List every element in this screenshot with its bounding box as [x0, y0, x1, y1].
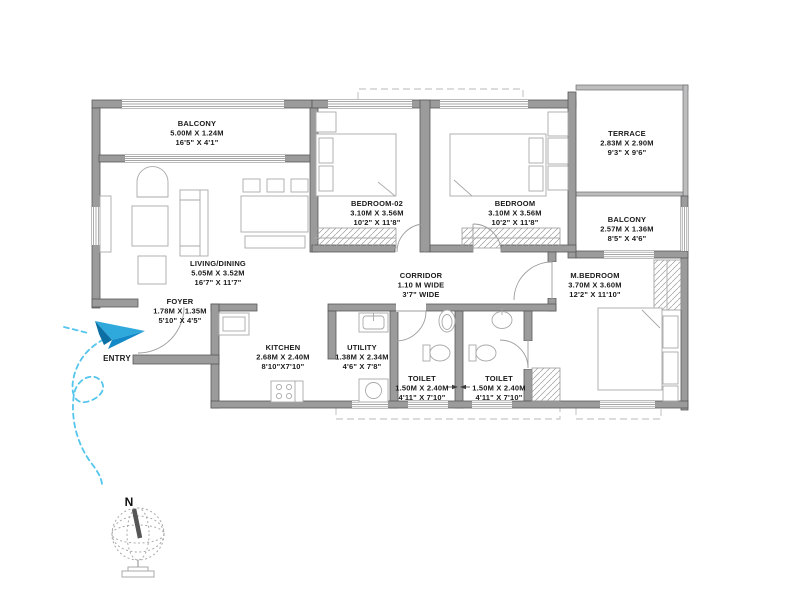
room-name: BEDROOM-02	[351, 199, 403, 208]
room-label-bedroom: BEDROOM 3.10M X 3.56M 10'2" X 11'8"	[488, 199, 541, 227]
room-name: LIVING/DINING	[190, 259, 246, 268]
room-metric: 1.38M X 2.34M	[335, 353, 388, 362]
room-imperial: 10'2" X 11'8"	[491, 218, 538, 227]
room-metric: 1.50M X 2.40M	[395, 384, 448, 393]
room-metric: 3.10M X 3.56M	[350, 209, 403, 218]
floorplan-drawing: N BALCONY 5.00M X 1.24M 16'5" X 4'1" LIV…	[0, 0, 800, 600]
room-metric: 5.00M X 1.24M	[170, 129, 223, 138]
room-imperial: 9'3" X 9'6"	[608, 148, 647, 157]
room-name: M.BEDROOM	[570, 271, 619, 280]
room-metric: 2.83M X 2.90M	[600, 139, 653, 148]
room-label-toilet-2: TOILET 1.50M X 2.40M 4'11" X 7'10"	[472, 374, 525, 402]
room-imperial: 12'2" X 11'10"	[569, 290, 621, 299]
room-label-balcony-right: BALCONY 2.57M X 1.36M 8'5" X 4'6"	[600, 215, 653, 243]
room-imperial: 8'5" X 4'6"	[608, 234, 647, 243]
room-label-utility: UTILITY 1.38M X 2.34M 4'6" X 7'8"	[335, 343, 388, 371]
room-label-living-dining: LIVING/DINING 5.05M X 3.52M 16'7" X 11'7…	[190, 259, 246, 287]
entry-label: ENTRY	[103, 354, 131, 363]
room-imperial: 3'7" WIDE	[402, 290, 439, 299]
room-label-terrace: TERRACE 2.83M X 2.90M 9'3" X 9'6"	[600, 129, 653, 157]
room-imperial: 16'5" X 4'1"	[175, 138, 218, 147]
room-metric: 2.68M X 2.40M	[256, 353, 309, 362]
room-imperial: 5'10" X 4'5"	[158, 316, 201, 325]
room-metric: 1.78M X 1.35M	[153, 307, 206, 316]
room-label-foyer: FOYER 1.78M X 1.35M 5'10" X 4'5"	[153, 297, 206, 325]
bedroom02-furniture	[314, 112, 396, 248]
room-metric: 2.57M X 1.36M	[600, 225, 653, 234]
room-name: TOILET	[408, 374, 436, 383]
room-name: BALCONY	[608, 215, 646, 224]
room-label-toilet-1: TOILET 1.50M X 2.40M 4'11" X 7'10"	[395, 374, 448, 402]
toilet1-fixtures	[423, 310, 455, 361]
room-name: BALCONY	[178, 119, 216, 128]
room-label-corridor: CORRIDOR 1.10 M WIDE 3'7" WIDE	[398, 271, 445, 299]
floorplan-page: N BALCONY 5.00M X 1.24M 16'5" X 4'1" LIV…	[0, 0, 800, 600]
wardrobe-niche	[532, 368, 560, 401]
bedroom-furniture	[450, 112, 568, 248]
room-metric: 3.10M X 3.56M	[488, 209, 541, 218]
entry-trail	[64, 327, 112, 484]
room-label-balcony-top: BALCONY 5.00M X 1.24M 16'5" X 4'1"	[170, 119, 223, 147]
room-metric: 1.50M X 2.40M	[472, 384, 525, 393]
room-name: KITCHEN	[266, 343, 301, 352]
room-name: TERRACE	[608, 129, 646, 138]
room-name: TOILET	[485, 374, 513, 383]
room-label-bedroom-02: BEDROOM-02 3.10M X 3.56M 10'2" X 11'8"	[350, 199, 403, 227]
entry-plane-icon	[95, 321, 145, 349]
room-imperial: 4'11" X 7'10"	[475, 393, 522, 402]
room-imperial: 4'6" X 7'8"	[343, 362, 382, 371]
room-metric: 1.10 M WIDE	[398, 281, 445, 290]
room-imperial: 16'7" X 11'7"	[194, 278, 241, 287]
room-name: BEDROOM	[495, 199, 536, 208]
toilet2-fixtures	[469, 308, 512, 361]
room-label-m-bedroom: M.BEDROOM 3.70M X 3.60M 12'2" X 11'10"	[568, 271, 621, 299]
compass-north-label: N	[125, 495, 134, 509]
room-imperial: 8'10"X7'10"	[262, 362, 305, 371]
room-name: UTILITY	[347, 343, 377, 352]
room-metric: 5.05M X 3.52M	[191, 269, 244, 278]
room-name: CORRIDOR	[400, 271, 443, 280]
room-label-kitchen: KITCHEN 2.68M X 2.40M 8'10"X7'10"	[256, 343, 309, 371]
room-metric: 3.70M X 3.60M	[568, 281, 621, 290]
room-imperial: 4'11" X 7'10"	[398, 393, 445, 402]
room-name: FOYER	[167, 297, 194, 306]
room-imperial: 10'2" X 11'8"	[353, 218, 400, 227]
compass-icon: N	[112, 495, 164, 577]
